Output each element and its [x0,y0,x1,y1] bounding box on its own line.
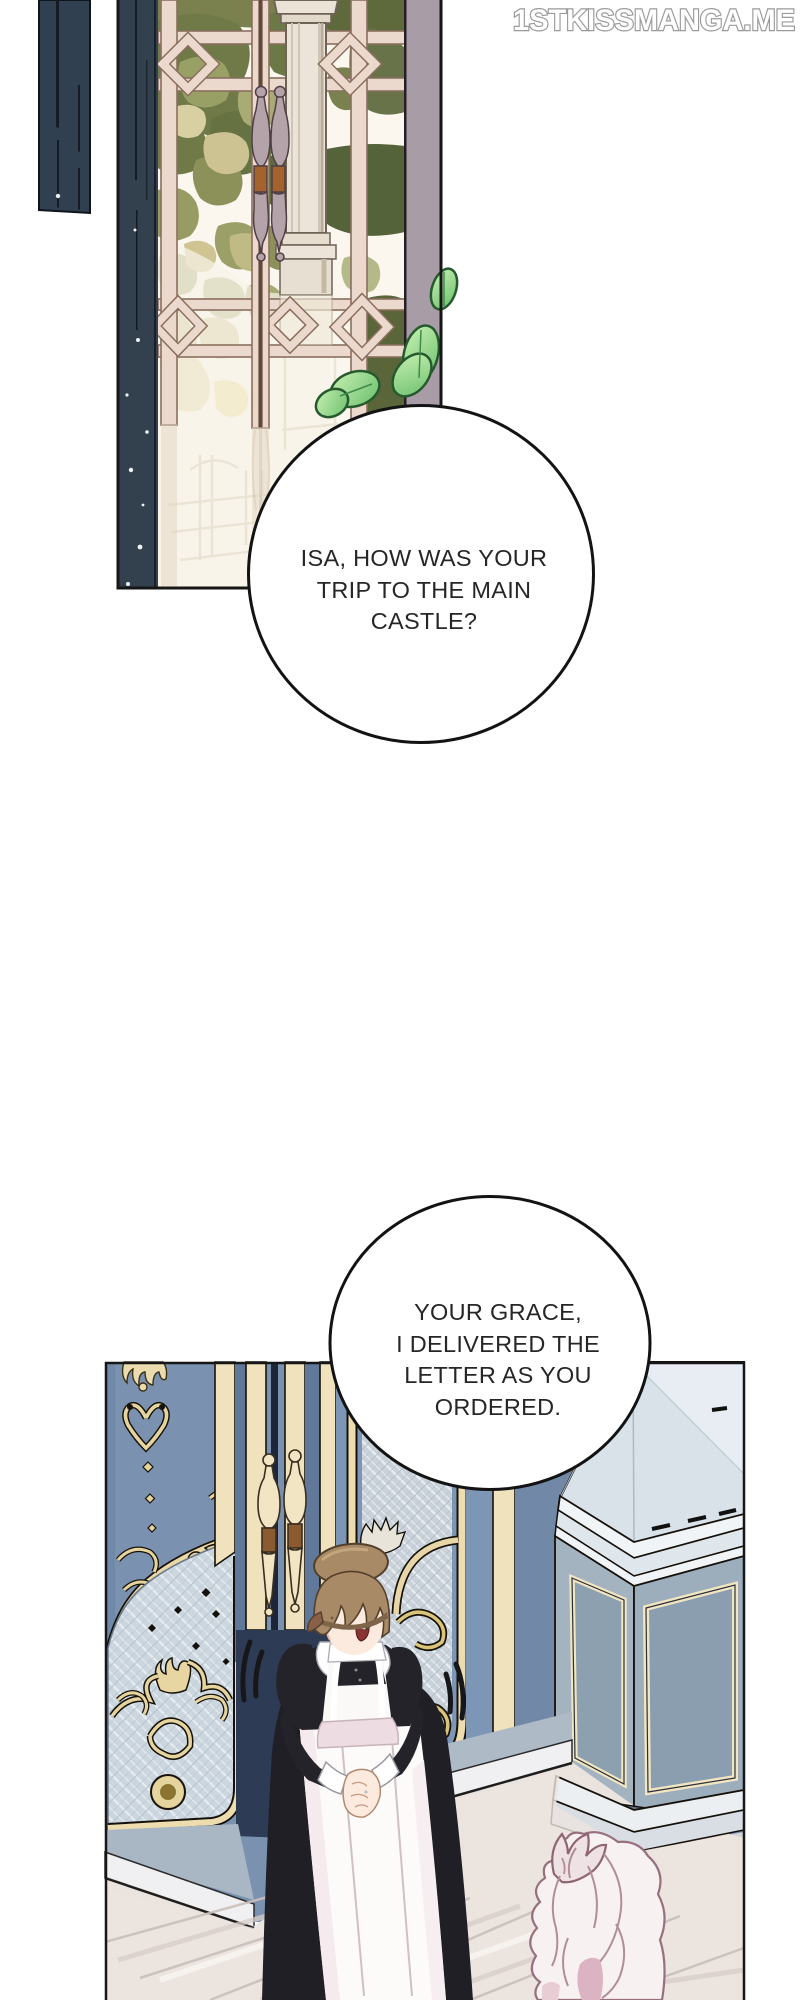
svg-text:1STKISSMANGA.ME: 1STKISSMANGA.ME [513,4,795,37]
